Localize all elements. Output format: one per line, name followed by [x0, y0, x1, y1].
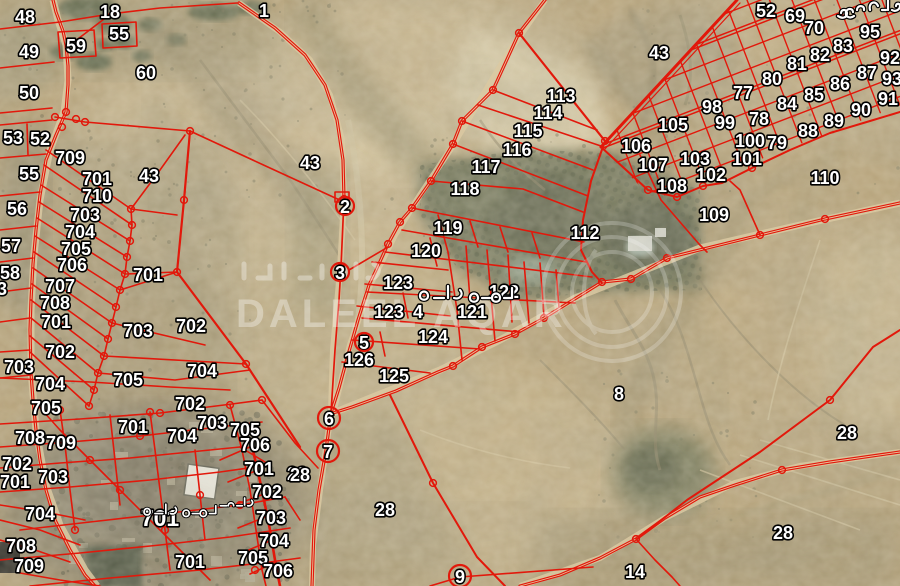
svg-text:704: 704	[35, 374, 65, 394]
svg-text:28: 28	[290, 465, 310, 485]
svg-text:55: 55	[19, 164, 39, 184]
svg-text:702: 702	[175, 394, 205, 414]
svg-text:702: 702	[45, 342, 75, 362]
svg-text:95: 95	[860, 22, 880, 42]
svg-text:116: 116	[502, 140, 531, 160]
svg-text:708: 708	[40, 293, 70, 313]
svg-text:93: 93	[882, 69, 900, 89]
svg-text:99: 99	[715, 113, 735, 133]
svg-text:710: 710	[82, 186, 112, 206]
svg-text:101: 101	[732, 149, 762, 169]
svg-text:55: 55	[109, 24, 129, 44]
svg-text:90: 90	[851, 100, 871, 120]
svg-text:701: 701	[118, 417, 148, 437]
svg-text:704: 704	[167, 426, 197, 446]
svg-text:703: 703	[38, 467, 68, 487]
svg-text:1: 1	[259, 1, 269, 21]
svg-text:53: 53	[3, 128, 23, 148]
svg-text:50: 50	[19, 83, 39, 103]
svg-text:48: 48	[15, 7, 35, 27]
svg-text:709: 709	[46, 433, 76, 453]
svg-text:107: 107	[638, 155, 668, 175]
svg-text:703: 703	[123, 321, 153, 341]
svg-text:84: 84	[777, 94, 797, 114]
svg-text:9: 9	[455, 567, 465, 586]
svg-text:702: 702	[2, 454, 32, 474]
svg-text:3: 3	[0, 279, 7, 299]
svg-text:125: 125	[379, 366, 409, 386]
svg-text:57: 57	[1, 236, 21, 256]
svg-text:92: 92	[880, 48, 900, 68]
svg-text:49: 49	[19, 42, 39, 62]
svg-text:28: 28	[837, 423, 857, 443]
svg-text:83: 83	[833, 36, 853, 56]
svg-text:88: 88	[798, 121, 818, 141]
svg-text:7: 7	[323, 442, 333, 462]
svg-text:708: 708	[15, 428, 45, 448]
svg-text:69: 69	[785, 6, 805, 26]
svg-text:82: 82	[810, 45, 830, 65]
svg-text:705: 705	[113, 370, 143, 390]
svg-text:28: 28	[375, 500, 395, 520]
svg-text:119: 119	[433, 218, 462, 238]
svg-text:86: 86	[830, 74, 850, 94]
svg-text:704: 704	[187, 361, 217, 381]
svg-text:703: 703	[197, 413, 227, 433]
svg-text:60: 60	[136, 63, 156, 83]
svg-text:52: 52	[756, 1, 776, 21]
svg-text:18: 18	[100, 2, 120, 22]
svg-text:102: 102	[696, 165, 726, 185]
svg-text:81: 81	[787, 54, 807, 74]
svg-text:701: 701	[0, 472, 30, 492]
svg-text:43: 43	[300, 153, 320, 173]
svg-text:708: 708	[6, 536, 36, 556]
svg-text:709: 709	[55, 148, 85, 168]
svg-text:85: 85	[804, 85, 824, 105]
svg-text:78: 78	[749, 109, 769, 129]
svg-text:703: 703	[256, 508, 286, 528]
svg-text:126: 126	[344, 350, 374, 370]
svg-text:704: 704	[25, 504, 55, 524]
svg-text:701: 701	[175, 552, 205, 572]
svg-text:124: 124	[418, 327, 448, 347]
svg-text:109: 109	[699, 205, 729, 225]
svg-text:709: 709	[14, 556, 44, 576]
svg-text:14: 14	[625, 562, 645, 582]
svg-text:87: 87	[857, 63, 877, 83]
svg-text:701: 701	[41, 312, 71, 332]
svg-text:112: 112	[570, 223, 599, 243]
svg-text:115: 115	[513, 121, 542, 141]
svg-text:91: 91	[878, 89, 898, 109]
svg-text:100: 100	[735, 131, 765, 151]
svg-text:105: 105	[658, 115, 688, 135]
svg-text:117: 117	[471, 157, 500, 177]
svg-text:106: 106	[621, 136, 651, 156]
svg-text:123: 123	[383, 273, 413, 293]
svg-text:28: 28	[773, 523, 793, 543]
svg-text:701: 701	[133, 265, 163, 285]
svg-text:118: 118	[450, 179, 479, 199]
svg-text:52: 52	[30, 129, 50, 149]
svg-text:702: 702	[252, 482, 282, 502]
svg-text:123: 123	[374, 302, 404, 322]
svg-text:43: 43	[649, 43, 669, 63]
svg-text:80: 80	[762, 69, 782, 89]
svg-text:706: 706	[263, 561, 293, 581]
svg-text:43: 43	[139, 166, 159, 186]
svg-text:6: 6	[324, 409, 334, 429]
svg-text:8: 8	[614, 384, 624, 404]
svg-text:703: 703	[4, 357, 34, 377]
svg-text:110: 110	[810, 168, 839, 188]
svg-text:77: 77	[733, 83, 753, 103]
svg-text:702: 702	[176, 316, 206, 336]
svg-text:701: 701	[244, 459, 274, 479]
svg-text:706: 706	[57, 255, 87, 275]
svg-text:79: 79	[767, 133, 787, 153]
svg-text:114: 114	[533, 103, 562, 123]
svg-text:705: 705	[31, 398, 61, 418]
svg-text:706: 706	[240, 435, 270, 455]
svg-text:4: 4	[413, 302, 423, 322]
svg-text:108: 108	[657, 176, 687, 196]
svg-text:70: 70	[804, 18, 824, 38]
svg-text:59: 59	[66, 36, 86, 56]
svg-text:89: 89	[824, 111, 844, 131]
svg-text:56: 56	[7, 199, 27, 219]
svg-text:121: 121	[457, 302, 487, 322]
svg-text:120: 120	[411, 241, 441, 261]
